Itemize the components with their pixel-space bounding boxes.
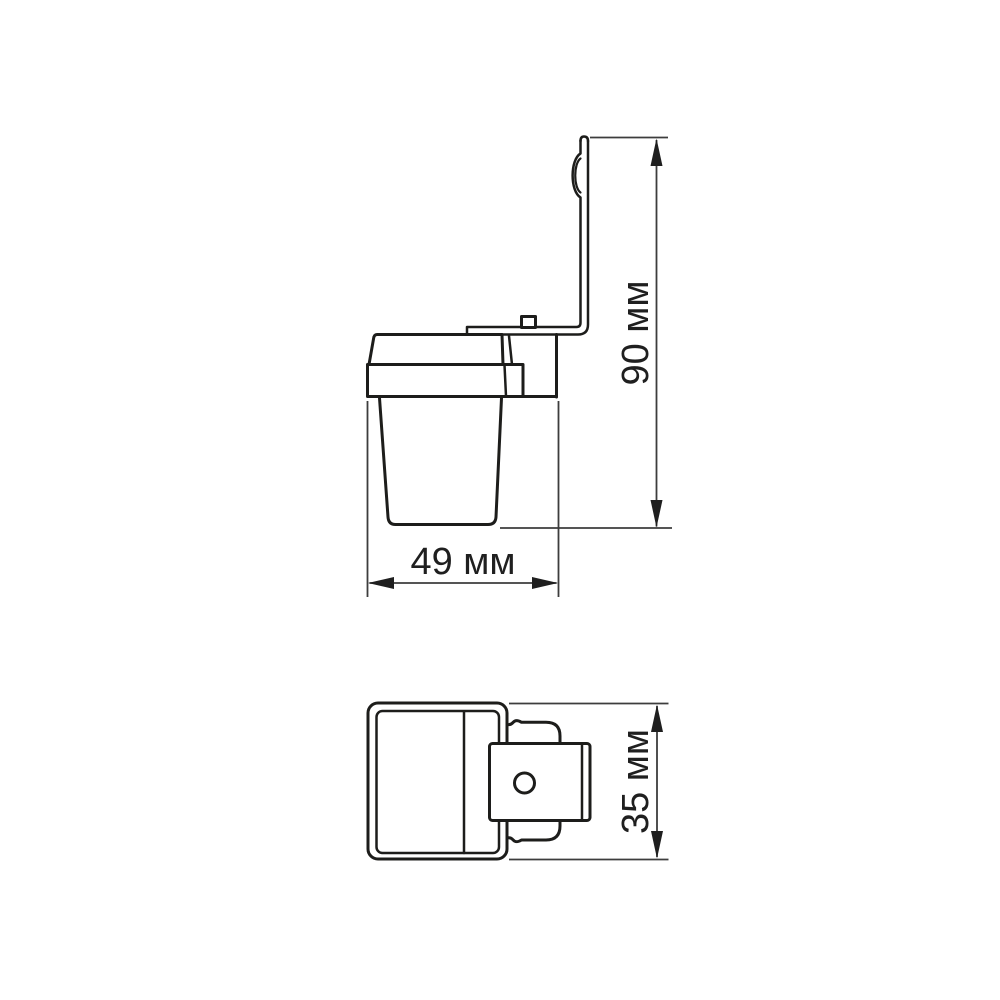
- band-edge-line: [505, 365, 507, 396]
- dimensional-drawing: 49 мм 90 мм: [0, 0, 1000, 1000]
- sensor-bucket: [380, 398, 502, 525]
- body-outline: [368, 703, 507, 859]
- depth-arrow-bottom: [651, 831, 663, 859]
- depth-arrow-top: [651, 705, 663, 733]
- bracket-hook-bump: [575, 159, 580, 193]
- bracket-top-cap: [581, 137, 589, 142]
- screw-hole: [515, 773, 535, 793]
- width-arrow-right: [532, 577, 558, 589]
- bracket-screw-tab: [522, 317, 536, 328]
- lid-edge-line: [509, 336, 512, 365]
- height-arrow-bottom: [651, 500, 663, 528]
- side-view: 49 мм 90 мм: [368, 137, 673, 598]
- mounting-bracket-inner: [467, 141, 581, 335]
- width-arrow-left: [368, 577, 394, 589]
- bottom-view: 35 мм: [368, 703, 669, 860]
- device-band: [368, 365, 524, 397]
- technical-drawing-canvas: 49 мм 90 мм: [0, 0, 1000, 1000]
- width-dimension-label: 49 мм: [410, 541, 515, 583]
- depth-dimension-label: 35 мм: [615, 729, 657, 834]
- height-arrow-top: [651, 139, 663, 167]
- device-lid: [369, 335, 503, 365]
- bracket-plate: [490, 744, 591, 821]
- height-dimension-label: 90 мм: [615, 280, 657, 385]
